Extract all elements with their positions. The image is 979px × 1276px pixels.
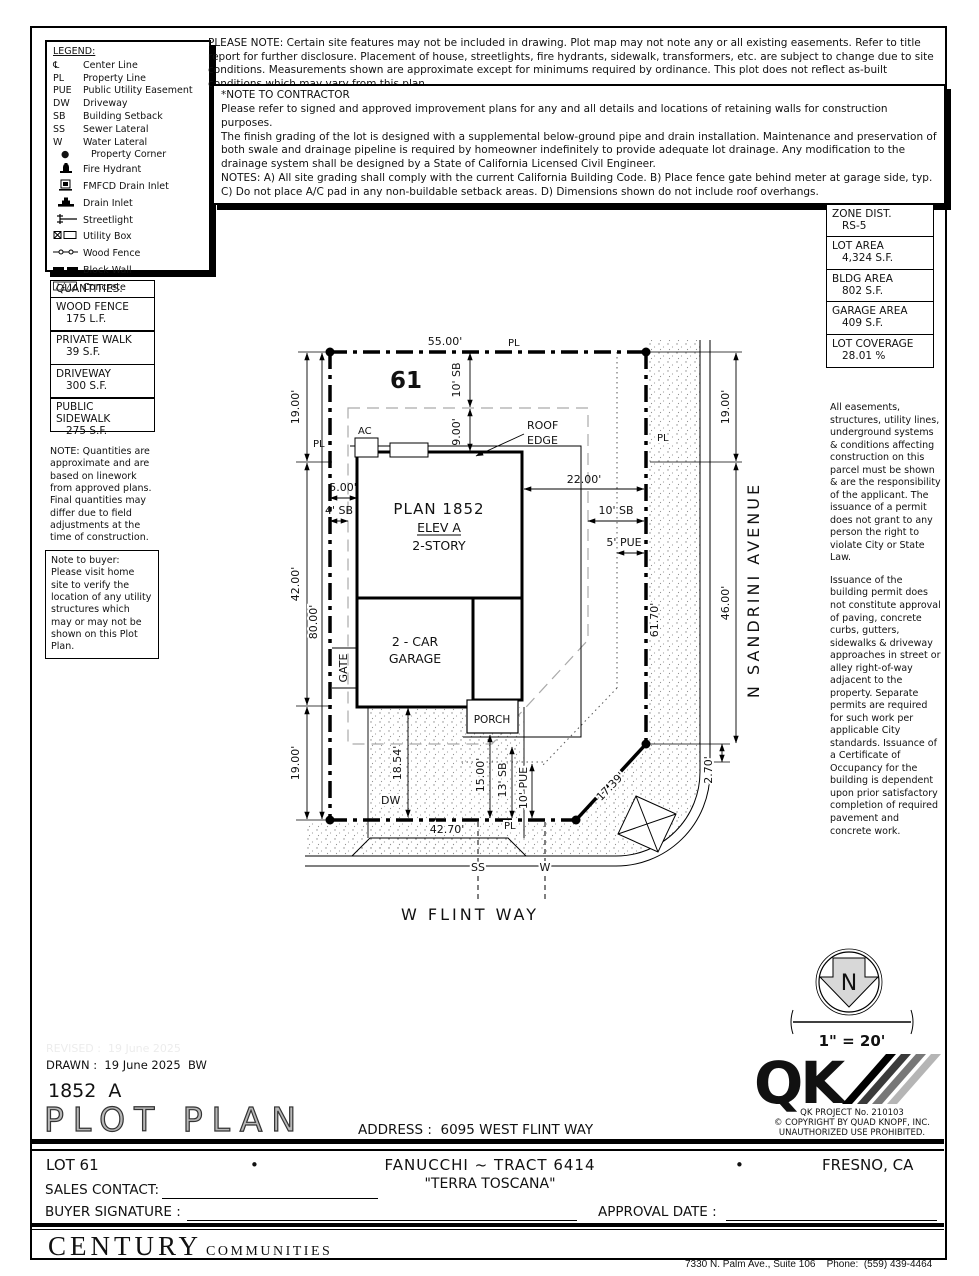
- driveway-apron: [352, 838, 526, 856]
- divider-line: [32, 1149, 944, 1151]
- sewer-symbol: SS: [53, 124, 83, 137]
- dim-label-4270: 42.70': [430, 823, 465, 836]
- qk-project-number: QK PROJECT No. 210103: [800, 1108, 904, 1118]
- legend-item: FMFCD Drain Inlet: [53, 179, 203, 196]
- contractor-note-p1: Please refer to signed and approved impr…: [221, 103, 937, 131]
- svg-text:EDGE: EDGE: [527, 434, 558, 447]
- divider-line: [32, 1229, 944, 1230]
- zone-row: LOT COVERAGE28.01 %: [826, 334, 934, 368]
- community-name: "TERRA TOSCANA": [370, 1176, 610, 1192]
- address-label: ADDRESS :: [358, 1122, 441, 1138]
- divider-band: [32, 1223, 944, 1227]
- legend-item: ℄Center Line: [53, 60, 203, 73]
- contractor-note-p2: The finish grading of the lot is designe…: [221, 131, 937, 173]
- zone-row: ZONE DIST.RS-5: [826, 204, 934, 238]
- legend-item: WWater Lateral: [53, 137, 203, 150]
- dim-label-4sb: 4' SB: [325, 504, 353, 517]
- qk-logo-stripes: [842, 1054, 941, 1104]
- fire-hydrant-icon: [53, 162, 83, 179]
- dim-label-10pue: 10' PUE: [517, 767, 530, 809]
- approval-date-line: [726, 1220, 937, 1221]
- builder-address-line1: 7330 N. Palm Ave., Suite 106 Phone: (559…: [685, 1258, 932, 1272]
- builder-address: 7330 N. Palm Ave., Suite 106 Phone: (559…: [685, 1231, 932, 1276]
- drawn-date: DRAWN : 19 June 2025 BW: [46, 1058, 207, 1072]
- dim-label-10sb-right: 10' SB: [598, 504, 633, 517]
- dim-label-9ft: 9.00': [450, 418, 463, 446]
- property-line-symbol: PL: [53, 73, 83, 86]
- setback-symbol: SB: [53, 111, 83, 124]
- legend-item: Utility Box: [53, 229, 203, 246]
- sewer-lateral-label: SS: [471, 861, 485, 874]
- garage-label: 2 - CAR: [392, 634, 439, 649]
- dim-label-42ft: 42.00': [289, 567, 302, 602]
- zone-table: ZONE DIST.RS-5 LOT AREA4,324 S.F. BLDG A…: [826, 205, 934, 368]
- dim-label-55ft: 55.00': [428, 335, 463, 348]
- wood-fence-icon: [53, 246, 83, 263]
- plan-code: 1852 A: [48, 1080, 121, 1102]
- legend-box: LEGEND: ℄Center Line PLProperty Line PUE…: [45, 40, 211, 272]
- contractor-note-box: *NOTE TO CONTRACTOR Please refer to sign…: [212, 84, 946, 205]
- street-name-flint-way: W FLINT WAY: [401, 905, 539, 924]
- dim-label-19ft-left-bottom: 19.00': [289, 746, 302, 781]
- dim-label-15ft: 15.00': [474, 758, 487, 793]
- bullet-separator: •: [735, 1156, 744, 1174]
- qk-unauthorized: UNAUTHORIZED USE PROHIBITED.: [779, 1128, 925, 1138]
- builder-name-sub: COMMUNITIES: [206, 1244, 332, 1259]
- divider-band: [32, 1139, 944, 1144]
- quantities-row: DRIVEWAY300 S.F.: [50, 364, 155, 399]
- plan-name: PLAN 1852: [393, 500, 484, 518]
- quantities-row: PUBLIC SIDEWALK275 S.F.: [50, 397, 155, 432]
- water-lateral-label: W: [540, 861, 551, 874]
- plan-story: 2-STORY: [412, 538, 466, 553]
- sheet-title: PLOT PLAN: [44, 1100, 305, 1139]
- dim-label-19ft-right: 19.00': [719, 390, 732, 425]
- tract-label: FANUCCHI ~ TRACT 6414: [350, 1156, 630, 1174]
- zone-row: BLDG AREA802 S.F.: [826, 269, 934, 303]
- legend-item: Streetlight: [53, 213, 203, 230]
- builder-name-main: CENTURY: [48, 1231, 202, 1261]
- streetlight-icon: [53, 213, 83, 230]
- zone-row: GARAGE AREA409 S.F.: [826, 301, 934, 335]
- address-value: 6095 WEST FLINT WAY: [441, 1122, 594, 1138]
- street-name-sandrini-ave: N SANDRINI AVENUE: [744, 482, 763, 698]
- dim-label-270: 2.70': [702, 756, 715, 784]
- lot-number: 61: [390, 368, 422, 394]
- svg-text:GARAGE: GARAGE: [389, 651, 441, 666]
- driveway-symbol: DW: [53, 98, 83, 111]
- legend-item: ●Property Corner: [53, 149, 203, 162]
- water-symbol: W: [53, 137, 83, 150]
- legend-item: Drain Inlet: [53, 196, 203, 213]
- legend-item: SBBuilding Setback: [53, 111, 203, 124]
- meter-box: [390, 443, 428, 457]
- dw-label: DW: [381, 794, 400, 807]
- zone-row: LOT AREA4,324 S.F.: [826, 236, 934, 270]
- scale-bar: [791, 1010, 913, 1034]
- sales-contact-line: [162, 1198, 378, 1199]
- ac-label: AC: [358, 426, 372, 437]
- qk-logo-block: QK QK PROJECT No. 210103 © COPYRIGHT BY …: [752, 1048, 947, 1138]
- buyer-note-box: Note to buyer: Please visit home site to…: [45, 550, 159, 659]
- quantities-note: NOTE: Quantities are approximate and are…: [50, 446, 158, 545]
- buyer-signature-line: [187, 1220, 577, 1221]
- dim-label-6170: 61.70': [648, 603, 661, 638]
- plot-plan-sheet: LEGEND: ℄Center Line PLProperty Line PUE…: [0, 0, 979, 1276]
- contractor-note-heading: *NOTE TO CONTRACTOR: [221, 89, 937, 103]
- sales-contact-label: SALES CONTACT:: [45, 1182, 159, 1198]
- dim-label-80ft: 80.00': [307, 605, 320, 640]
- dim-label-5pue: 5' PUE: [606, 536, 641, 549]
- dim-label-1854: 18.54': [391, 746, 404, 781]
- right-note-p2: Issuance of the building permit does not…: [830, 575, 942, 838]
- bullet-separator: •: [250, 1156, 259, 1174]
- utility-box-icon: [53, 229, 83, 246]
- north-arrow-and-scale: N 1" = 20': [780, 930, 945, 1050]
- north-letter: N: [841, 971, 857, 996]
- revised-date: REVISED : 19 June 2025: [46, 1042, 181, 1055]
- fmfcd-drain-inlet-icon: [53, 179, 83, 196]
- dim-label-10sb-top: 10' SB: [450, 362, 463, 397]
- ac-unit: [355, 438, 378, 457]
- quantities-table: QUANTITIES: WOOD FENCE175 L.F. PRIVATE W…: [50, 280, 155, 432]
- legend-title: LEGEND:: [53, 46, 203, 59]
- pue-symbol: PUE: [53, 85, 83, 98]
- centerline-symbol: ℄: [53, 60, 83, 73]
- contractor-note-p3: NOTES: A) All site grading shall comply …: [221, 172, 937, 200]
- quantities-row: PRIVATE WALK39 S.F.: [50, 330, 155, 365]
- plan-elev: ELEV A: [417, 520, 461, 535]
- dim-label-46ft: 46.00': [719, 586, 732, 621]
- dim-label-19ft-left-top: 19.00': [289, 390, 302, 425]
- dim-label-5ft: 5.00': [329, 481, 357, 494]
- legend-item: PLProperty Line: [53, 73, 203, 86]
- site-plan-drawing: 61 55.00' PL PL PL PL 10' SB 9.00' ROOF …: [275, 322, 780, 947]
- quantities-title: QUANTITIES:: [50, 280, 155, 298]
- right-column-notes: All easements, structures, utility lines…: [830, 402, 942, 848]
- builder-logo: CENTURY COMMUNITIES: [48, 1231, 332, 1262]
- pl-label-bottom: PL: [504, 821, 516, 832]
- roof-edge-label: ROOF: [527, 419, 558, 432]
- address-line: ADDRESS : 6095 WEST FLINT WAY: [358, 1122, 593, 1138]
- legend-item: Wood Fence: [53, 246, 203, 263]
- legend-item: Fire Hydrant: [53, 162, 203, 179]
- right-note-p1: All easements, structures, utility lines…: [830, 402, 942, 565]
- dim-label-22ft: 22.00': [567, 473, 602, 486]
- lot-label: LOT 61: [46, 1156, 99, 1174]
- buyer-signature-label: BUYER SIGNATURE :: [45, 1204, 181, 1220]
- qk-logo-text: QK: [754, 1049, 847, 1117]
- porch-label: PORCH: [474, 714, 511, 726]
- qk-copyright: © COPYRIGHT BY QUAD KNOPF, INC.: [774, 1118, 930, 1128]
- legend-item: Block Wall: [53, 263, 203, 280]
- drain-inlet-icon: [53, 196, 83, 213]
- legend-item: SSSewer Lateral: [53, 124, 203, 137]
- gate-label: GATE: [337, 654, 350, 683]
- pl-label-right: PL: [657, 433, 669, 444]
- house-footprint: [332, 438, 581, 737]
- property-corner-icon: ●: [53, 149, 91, 162]
- dim-label-13sb: 13' SB: [496, 762, 509, 797]
- legend-item: DWDriveway: [53, 98, 203, 111]
- pl-label-left: PL: [313, 439, 325, 450]
- approval-date-label: APPROVAL DATE :: [598, 1204, 717, 1220]
- city-label: FRESNO, CA: [822, 1156, 913, 1174]
- pl-label-top: PL: [508, 338, 520, 349]
- block-wall-icon: [53, 263, 83, 280]
- quantities-row: WOOD FENCE175 L.F.: [50, 297, 155, 332]
- legend-item: PUEPublic Utility Easement: [53, 85, 203, 98]
